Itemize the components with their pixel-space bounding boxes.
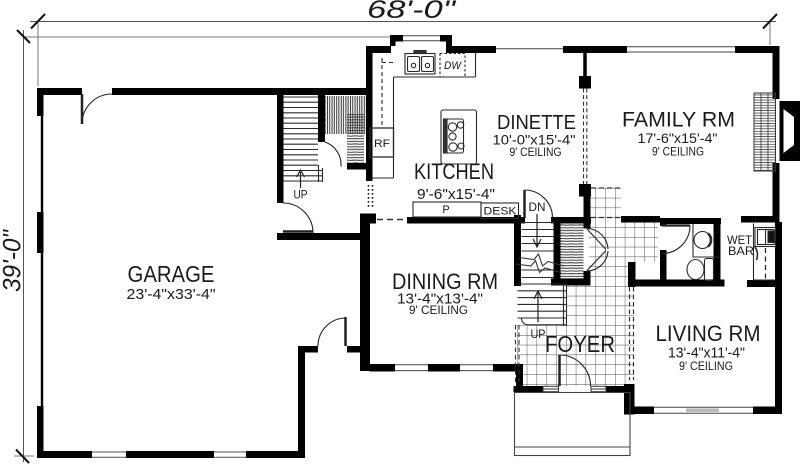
svg-text:9' CEILING: 9' CEILING [679,361,733,373]
svg-text:68'-0": 68'-0" [367,0,457,24]
svg-text:P: P [442,204,449,216]
svg-text:DESK: DESK [484,206,518,218]
svg-text:9' CEILING: 9' CEILING [652,147,704,159]
svg-text:13'-4"x11'-4": 13'-4"x11'-4" [668,345,745,362]
svg-text:DW: DW [444,60,462,72]
svg-text:BAR: BAR [728,246,754,258]
svg-text:GARAGE: GARAGE [128,261,215,287]
svg-text:KITCHEN: KITCHEN [414,159,494,184]
svg-text:17'-6"x15'-4": 17'-6"x15'-4" [638,130,718,146]
svg-text:10'-0"x15'-4": 10'-0"x15'-4" [493,132,576,148]
svg-text:UP: UP [294,190,308,202]
svg-text:39'-0": 39'-0" [0,229,27,292]
svg-text:9' CEILING: 9' CEILING [510,147,562,159]
svg-text:9' CEILING: 9' CEILING [409,305,468,317]
svg-text:23'-4"x33'-4": 23'-4"x33'-4" [127,286,216,303]
svg-text:FOYER: FOYER [545,331,615,357]
svg-text:FAMILY RM: FAMILY RM [622,109,735,132]
svg-text:9'-6"x15'-4": 9'-6"x15'-4" [417,186,495,203]
svg-text:LIVING RM: LIVING RM [656,321,761,346]
svg-text:RF: RF [374,138,390,150]
svg-text:UP: UP [531,329,546,341]
svg-text:DN: DN [529,202,546,214]
